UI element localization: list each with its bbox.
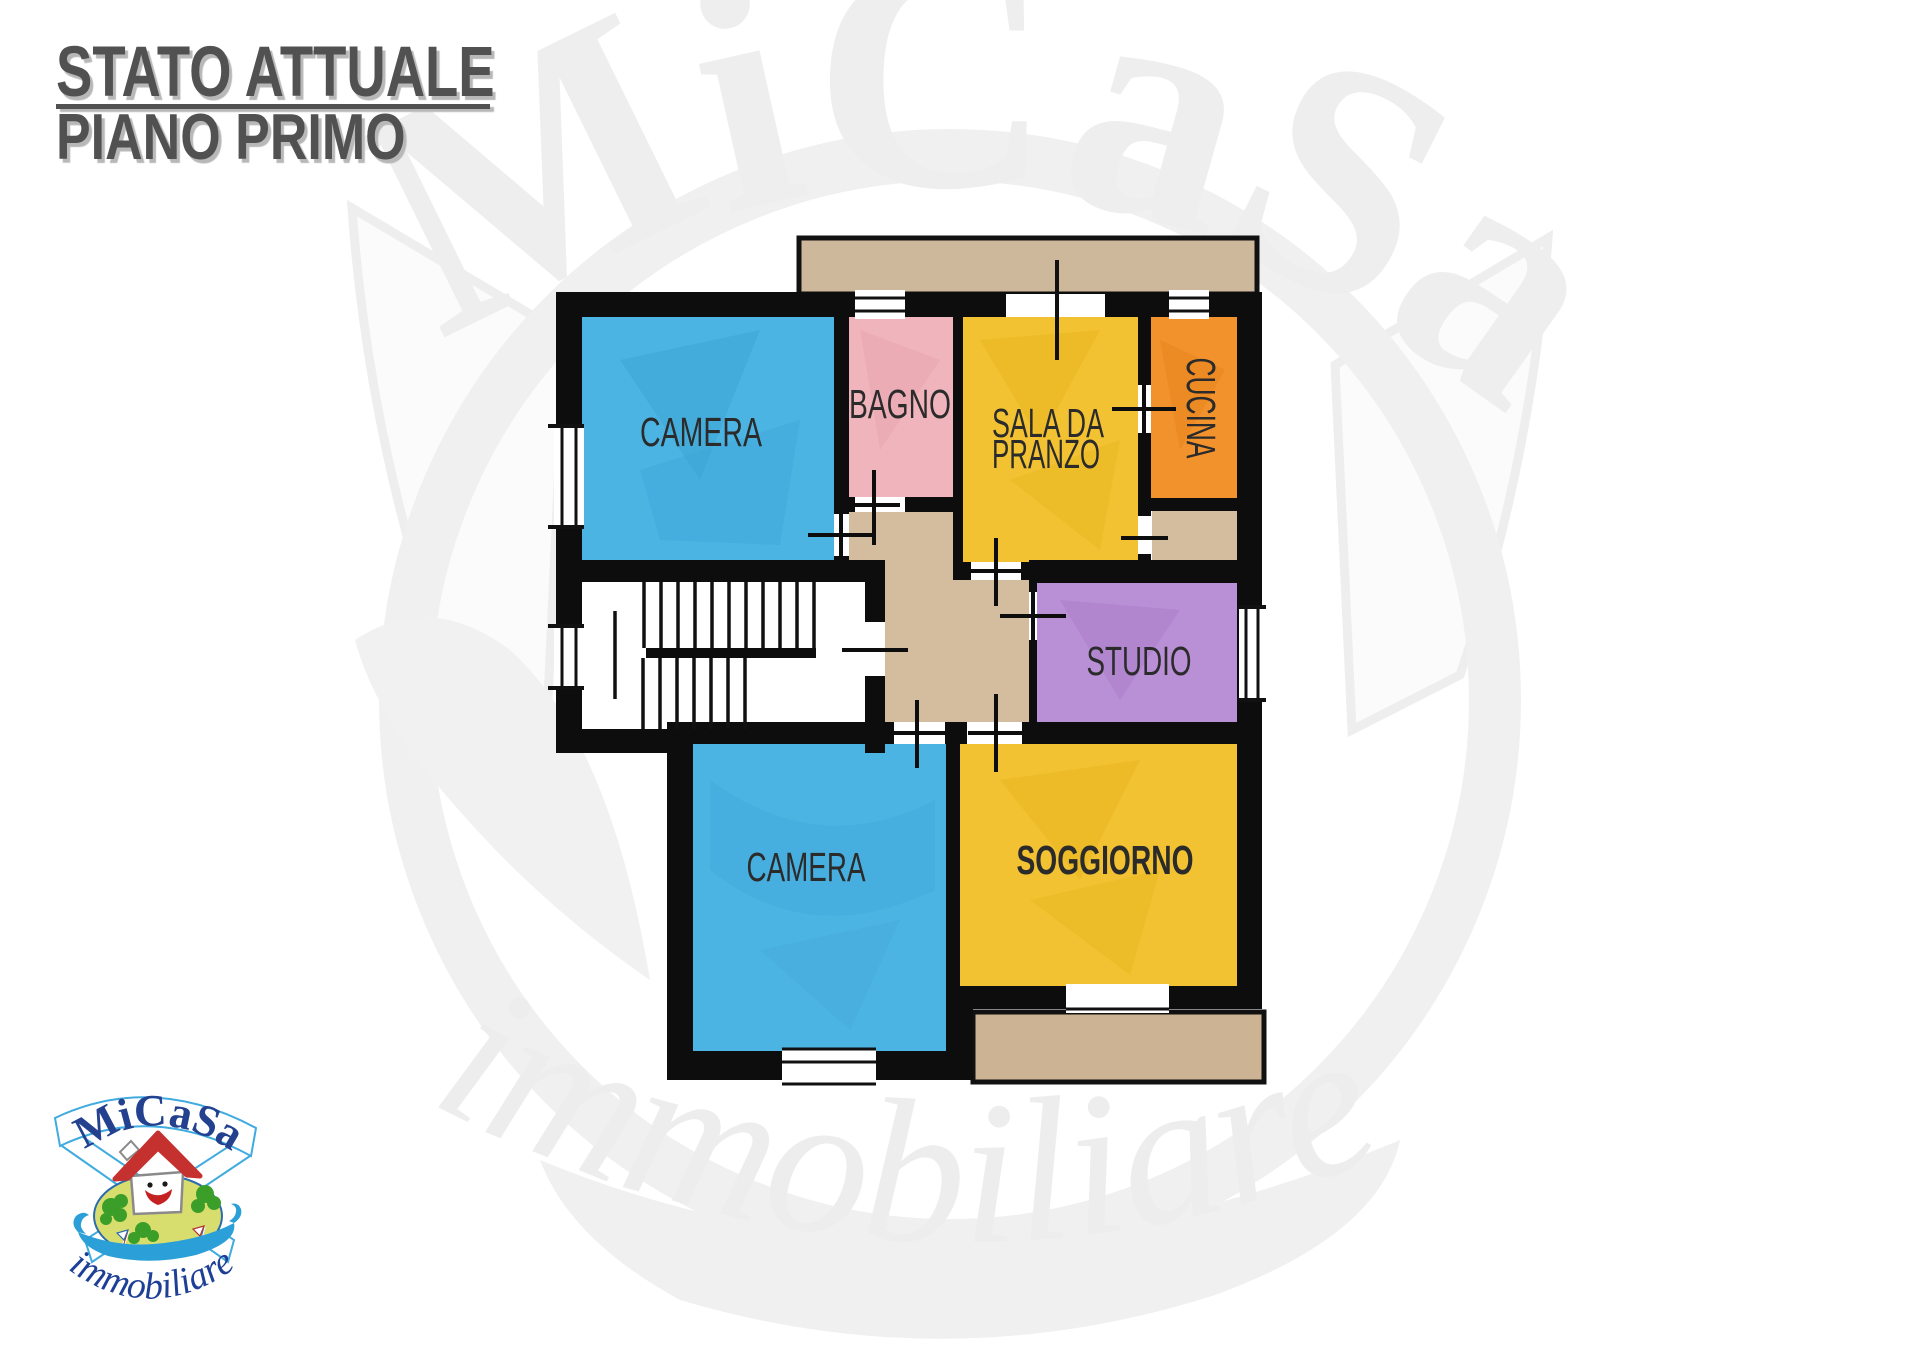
- svg-text:BAGNO: BAGNO: [849, 381, 951, 427]
- svg-text:CUCINA: CUCINA: [1178, 358, 1224, 459]
- svg-text:PRANZO: PRANZO: [992, 431, 1100, 477]
- svg-text:SOGGIORNO: SOGGIORNO: [1017, 837, 1194, 883]
- svg-text:CAMERA: CAMERA: [747, 844, 866, 890]
- svg-text:STUDIO: STUDIO: [1087, 638, 1192, 684]
- svg-text:CAMERA: CAMERA: [640, 409, 762, 455]
